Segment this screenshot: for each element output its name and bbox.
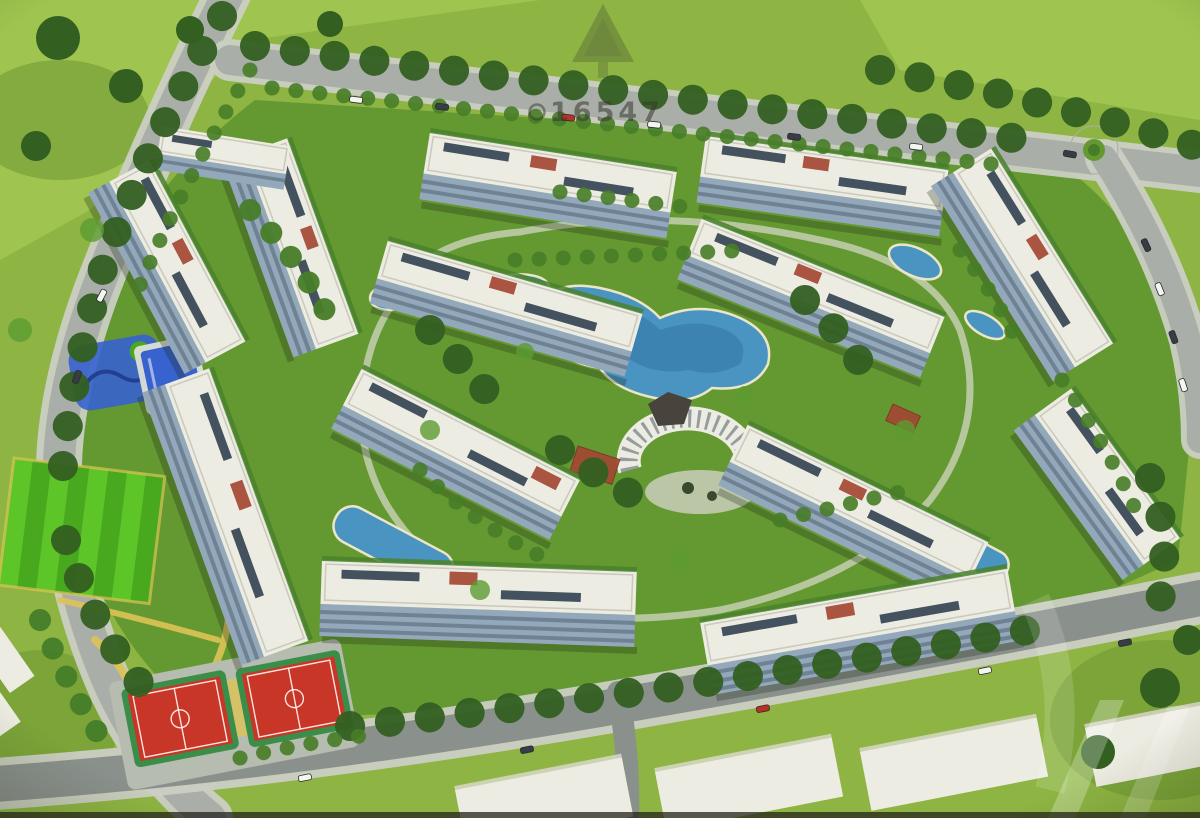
- scene: 16547: [0, 0, 1200, 818]
- aerial-render-image: 16547: [0, 0, 1200, 818]
- compound-aerial-scene: 16547: [0, 0, 1200, 818]
- vignette: [0, 0, 1200, 818]
